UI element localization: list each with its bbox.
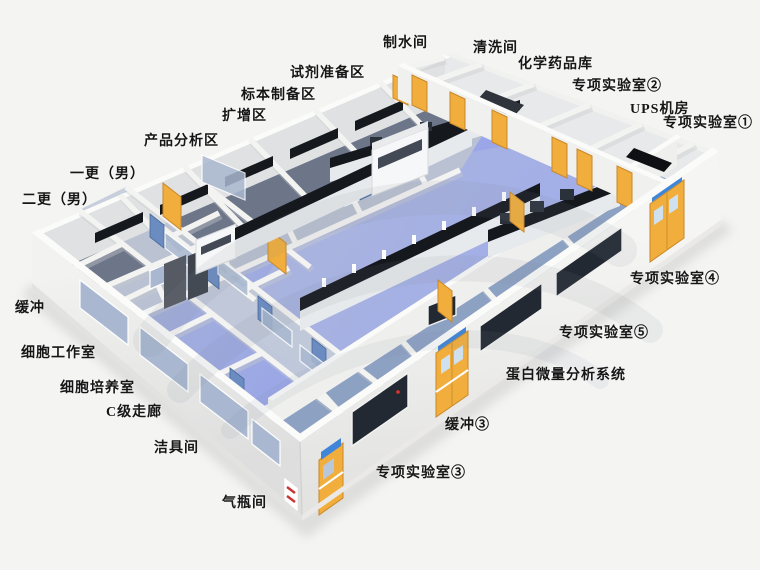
label-cleaning-tools-room: 洁具间 (154, 441, 199, 456)
label-first-change-male: 一更（男） (70, 167, 145, 182)
label-second-change-male: 二更（男） (22, 193, 97, 208)
label-product-analysis-area: 产品分析区 (144, 134, 219, 149)
label-washing-room: 清洗间 (473, 41, 518, 56)
yellow-door (450, 92, 465, 130)
label-special-lab-1: 专项实验室① (663, 116, 753, 131)
label-special-lab-2: 专项实验室② (572, 79, 662, 94)
label-buffer: 缓冲 (15, 301, 45, 316)
label-ups-room: UPS机房 (630, 102, 689, 117)
label-amplification-area: 扩增区 (222, 109, 267, 124)
yellow-door (617, 166, 632, 209)
label-water-production-room: 制水间 (383, 36, 428, 51)
label-chemical-storage: 化学药品库 (518, 57, 593, 72)
label-specimen-prep-area: 标本制备区 (241, 88, 316, 103)
label-special-lab-4: 专项实验室④ (630, 272, 720, 287)
label-buffer-3: 缓冲③ (445, 418, 490, 433)
label-protein-micro-analysis: 蛋白微量分析系统 (506, 368, 626, 383)
label-cell-workroom: 细胞工作室 (21, 346, 96, 361)
label-c-grade-corridor: C级走廊 (106, 405, 162, 420)
yellow-door (412, 75, 427, 112)
yellow-door (577, 149, 592, 191)
page: 制水间 清洗间 化学药品库 专项实验室② UPS机房 专项实验室① 试剂准备区 … (0, 0, 760, 570)
label-special-lab-5: 专项实验室⑤ (559, 326, 649, 341)
bench-instrument (560, 189, 574, 200)
indicator-light (396, 390, 400, 394)
label-special-lab-3: 专项实验室③ (376, 466, 466, 481)
label-cell-culture-room: 细胞培养室 (60, 381, 135, 396)
yellow-door (552, 137, 567, 178)
yellow-door (492, 110, 507, 149)
label-gas-cylinder-room: 气瓶间 (222, 496, 267, 511)
label-reagent-prep-area: 试剂准备区 (290, 66, 365, 81)
